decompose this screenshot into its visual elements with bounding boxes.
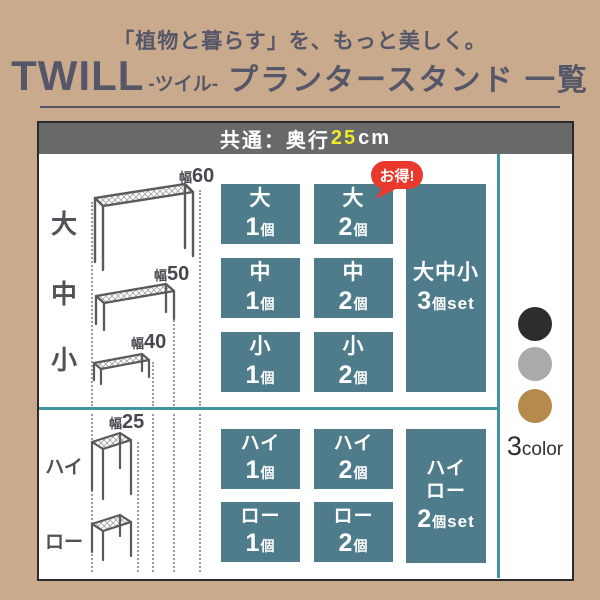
color-swatch-black bbox=[518, 307, 552, 341]
row-label-low: ロー bbox=[43, 527, 85, 554]
width-guide-line bbox=[173, 414, 175, 572]
width-guide-line bbox=[152, 414, 154, 572]
product-suffix: set bbox=[447, 512, 475, 531]
product-unit: 個 bbox=[260, 465, 275, 481]
page-title: プランタースタンド 一覧 bbox=[228, 64, 589, 97]
brand-reading: -ツイル- bbox=[148, 74, 218, 95]
product-size: ロー bbox=[426, 481, 466, 504]
product-size: ハイ bbox=[241, 433, 281, 456]
product-qty: 1 bbox=[246, 529, 261, 557]
color-count-number: 3 bbox=[507, 431, 522, 461]
product-qty: 2 bbox=[339, 361, 354, 389]
product-unit: 個 bbox=[432, 296, 447, 312]
brand-name: TWILL bbox=[11, 52, 144, 99]
color-swatch-gold bbox=[518, 389, 552, 423]
catch-copy: 「植物と暮らす」を、もっと美しく。 bbox=[0, 25, 600, 55]
product-size: 大 bbox=[343, 186, 365, 211]
color-count-word: color bbox=[522, 439, 563, 460]
product-size: ハイ bbox=[426, 458, 466, 481]
product-qty: 3 bbox=[417, 287, 432, 315]
row-label-medium: 中 bbox=[49, 274, 79, 311]
product-box-low-1: ロー 1個 bbox=[221, 502, 300, 562]
product-size: ハイ bbox=[334, 433, 374, 456]
product-box-small-2: 小 2個 bbox=[314, 332, 393, 392]
product-size: ロー bbox=[333, 506, 373, 529]
stand-illustration-low bbox=[86, 508, 146, 564]
width-guide-line bbox=[199, 414, 201, 572]
product-unit: 個 bbox=[260, 296, 275, 312]
product-size: 小 bbox=[250, 334, 272, 359]
product-qty: 2 bbox=[417, 505, 432, 533]
vertical-divider-line bbox=[497, 154, 500, 578]
product-qty: 2 bbox=[339, 456, 354, 484]
row-label-small: 小 bbox=[49, 340, 79, 377]
product-unit: 個 bbox=[353, 370, 368, 386]
stand-illustration-medium bbox=[88, 272, 188, 332]
product-box-high-1: ハイ 1個 bbox=[221, 429, 300, 489]
product-qty: 2 bbox=[339, 529, 354, 557]
row-label-large: 大 bbox=[49, 204, 79, 241]
product-size: 大中小 bbox=[413, 260, 479, 285]
common-depth-bar: 共通：奥行25cm bbox=[39, 123, 572, 154]
product-unit: 個 bbox=[353, 538, 368, 554]
product-qty: 1 bbox=[246, 456, 261, 484]
product-box-large-1: 大 1個 bbox=[221, 184, 300, 244]
product-qty: 1 bbox=[246, 287, 261, 315]
stand-illustration-high bbox=[86, 428, 146, 502]
product-box-medium-1: 中 1個 bbox=[221, 258, 300, 318]
color-swatch-gray bbox=[518, 347, 552, 381]
stand-illustration-small bbox=[88, 346, 160, 386]
product-unit: 個 bbox=[353, 296, 368, 312]
product-size: 中 bbox=[343, 260, 365, 285]
product-unit: 個 bbox=[260, 222, 275, 238]
product-suffix: set bbox=[447, 294, 475, 313]
stand-illustration-large bbox=[85, 170, 205, 272]
product-qty: 1 bbox=[246, 213, 261, 241]
product-size: 小 bbox=[343, 334, 365, 359]
product-box-medium-2: 中 2個 bbox=[314, 258, 393, 318]
product-unit: 個 bbox=[353, 465, 368, 481]
product-qty: 2 bbox=[339, 287, 354, 315]
product-qty: 1 bbox=[246, 361, 261, 389]
product-unit: 個 bbox=[353, 222, 368, 238]
title-row: TWILL-ツイル-プランタースタンド 一覧 bbox=[0, 52, 600, 100]
product-unit: 個 bbox=[432, 514, 447, 530]
title-underline bbox=[40, 106, 560, 108]
product-box-set-high-low: ハイ ロー 2個set bbox=[406, 429, 486, 563]
product-box-small-1: 小 1個 bbox=[221, 332, 300, 392]
product-box-low-2: ロー 2個 bbox=[314, 502, 393, 562]
depth-value: 25 bbox=[331, 127, 357, 150]
depth-prefix: 共通：奥行 bbox=[220, 124, 330, 153]
horizontal-divider-line bbox=[39, 407, 497, 410]
product-size: 中 bbox=[250, 260, 272, 285]
row-label-high: ハイ bbox=[43, 452, 85, 479]
product-unit: 個 bbox=[260, 370, 275, 386]
product-size: 大 bbox=[250, 186, 272, 211]
product-box-set-3: 大中小 3個set bbox=[406, 184, 486, 392]
product-qty: 2 bbox=[339, 213, 354, 241]
product-unit: 個 bbox=[260, 538, 275, 554]
depth-unit: cm bbox=[358, 127, 391, 150]
color-count-label: 3color bbox=[500, 431, 570, 462]
planter-stand-lineup-banner: 「植物と暮らす」を、もっと美しく。 TWILL-ツイル-プランタースタンド 一覧… bbox=[0, 0, 600, 600]
sale-badge: お得! bbox=[371, 161, 423, 189]
product-box-high-2: ハイ 2個 bbox=[314, 429, 393, 489]
product-size: ロー bbox=[240, 506, 280, 529]
